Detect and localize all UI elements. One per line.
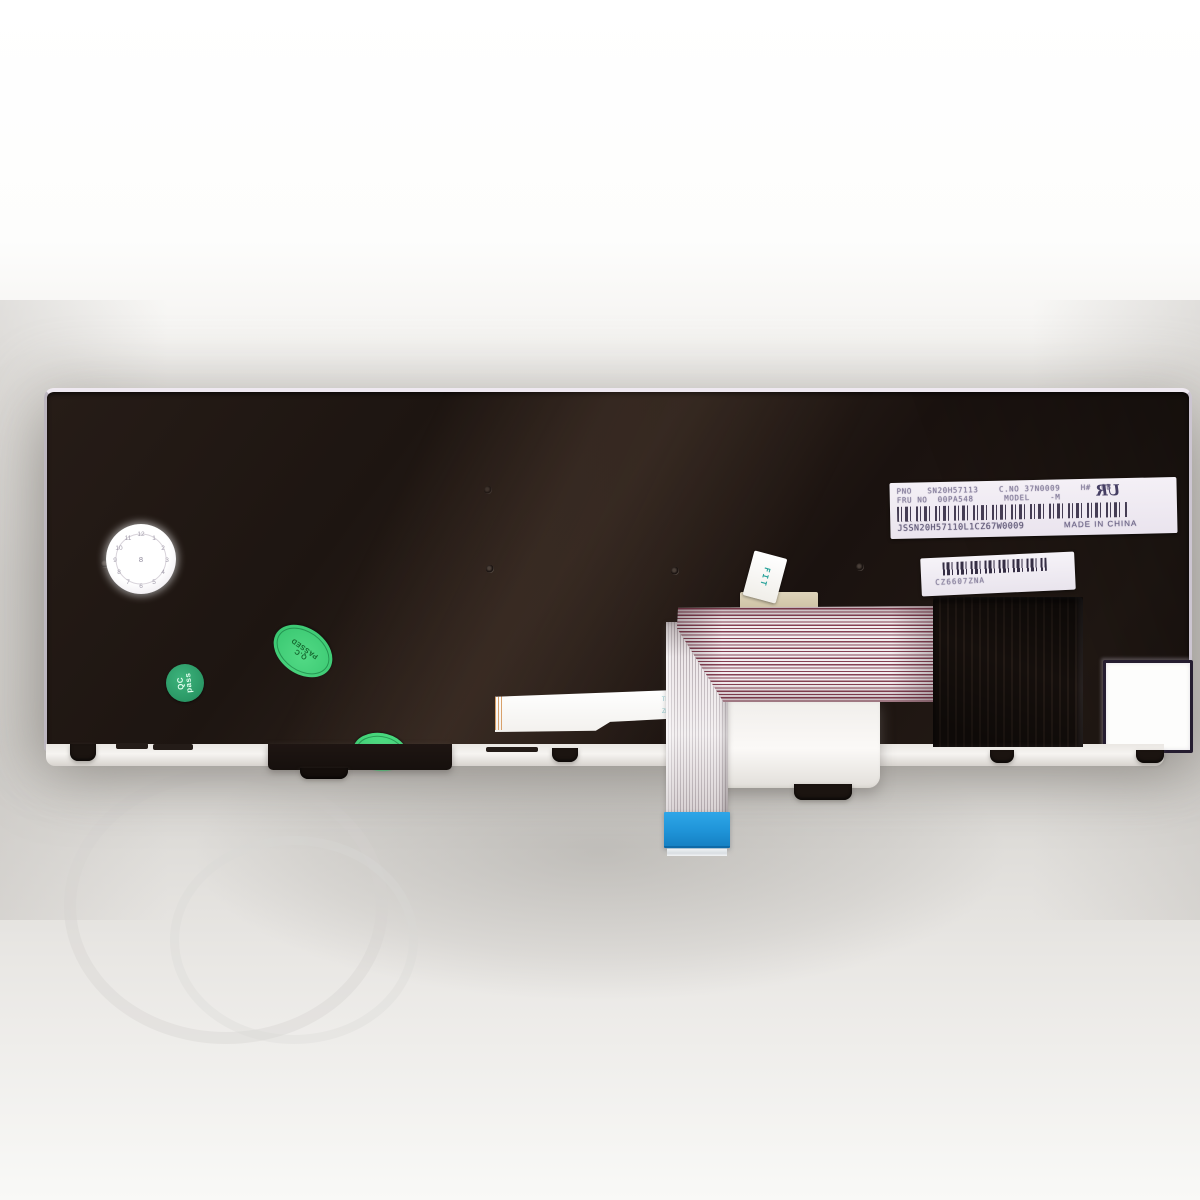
mount-slot xyxy=(486,747,538,752)
svg-text:7: 7 xyxy=(126,579,130,586)
screw-hole xyxy=(671,567,679,575)
mount-tab xyxy=(300,768,348,779)
small-barcode-label: CZ6607ZNA xyxy=(920,552,1076,597)
serial-number: JSSN20H57110L1CZ67W0009 xyxy=(897,521,1024,534)
ribbon-connector-blue-stiffener xyxy=(664,812,730,848)
qc-passed-oval-sticker: Q.C PASSED xyxy=(264,614,343,688)
qc-text: pass xyxy=(184,672,194,693)
white-cutout-window xyxy=(1103,660,1193,753)
svg-text:3: 3 xyxy=(165,557,169,564)
mount-tab xyxy=(552,748,578,762)
bottom-lip xyxy=(268,744,452,770)
product-photo-stage: PNO SN20H57113 C.NO 37N0009 H# 0B FRU NO… xyxy=(0,0,1200,1200)
mount-tab xyxy=(794,784,852,800)
screw-hole xyxy=(856,563,864,571)
svg-text:5: 5 xyxy=(152,579,156,586)
mount-tab xyxy=(1136,750,1164,763)
fit-tab-text: FIT xyxy=(758,566,772,588)
svg-text:8: 8 xyxy=(139,555,143,564)
svg-text:4: 4 xyxy=(161,569,165,576)
svg-text:8: 8 xyxy=(117,569,121,576)
date-wheel-marks: 12 1 2 3 4 5 6 7 8 9 10 11 8 xyxy=(106,524,176,594)
svg-text:2: 2 xyxy=(161,545,165,552)
mount-slot xyxy=(153,744,193,750)
main-barcode-label: PNO SN20H57113 C.NO 37N0009 H# 0B FRU NO… xyxy=(889,477,1177,539)
made-in-china-text: MADE IN CHINA xyxy=(1064,519,1138,530)
faint-watermark-ring xyxy=(170,836,418,1044)
ribbon-connector-edge xyxy=(667,848,727,856)
mount-tab xyxy=(70,744,96,761)
black-mylar-cover xyxy=(933,597,1083,747)
svg-text:6: 6 xyxy=(139,583,143,590)
ul-recognized-mark: UR xyxy=(1096,481,1122,499)
mount-slot xyxy=(116,743,148,749)
svg-text:12: 12 xyxy=(137,531,145,538)
mount-tab xyxy=(990,750,1014,763)
cable-conductors xyxy=(495,696,504,730)
screw-hole xyxy=(484,486,492,494)
screw-hole xyxy=(486,565,494,573)
white-flat-cable: TN ZM xyxy=(495,690,675,732)
date-wheel-sticker: 12 1 2 3 4 5 6 7 8 9 10 11 8 xyxy=(106,524,176,594)
svg-text:9: 9 xyxy=(113,557,117,564)
svg-text:11: 11 xyxy=(125,535,132,542)
qc-pass-round-sticker: QC pass xyxy=(166,664,204,702)
svg-text:1: 1 xyxy=(152,535,156,542)
svg-text:10: 10 xyxy=(115,545,123,552)
